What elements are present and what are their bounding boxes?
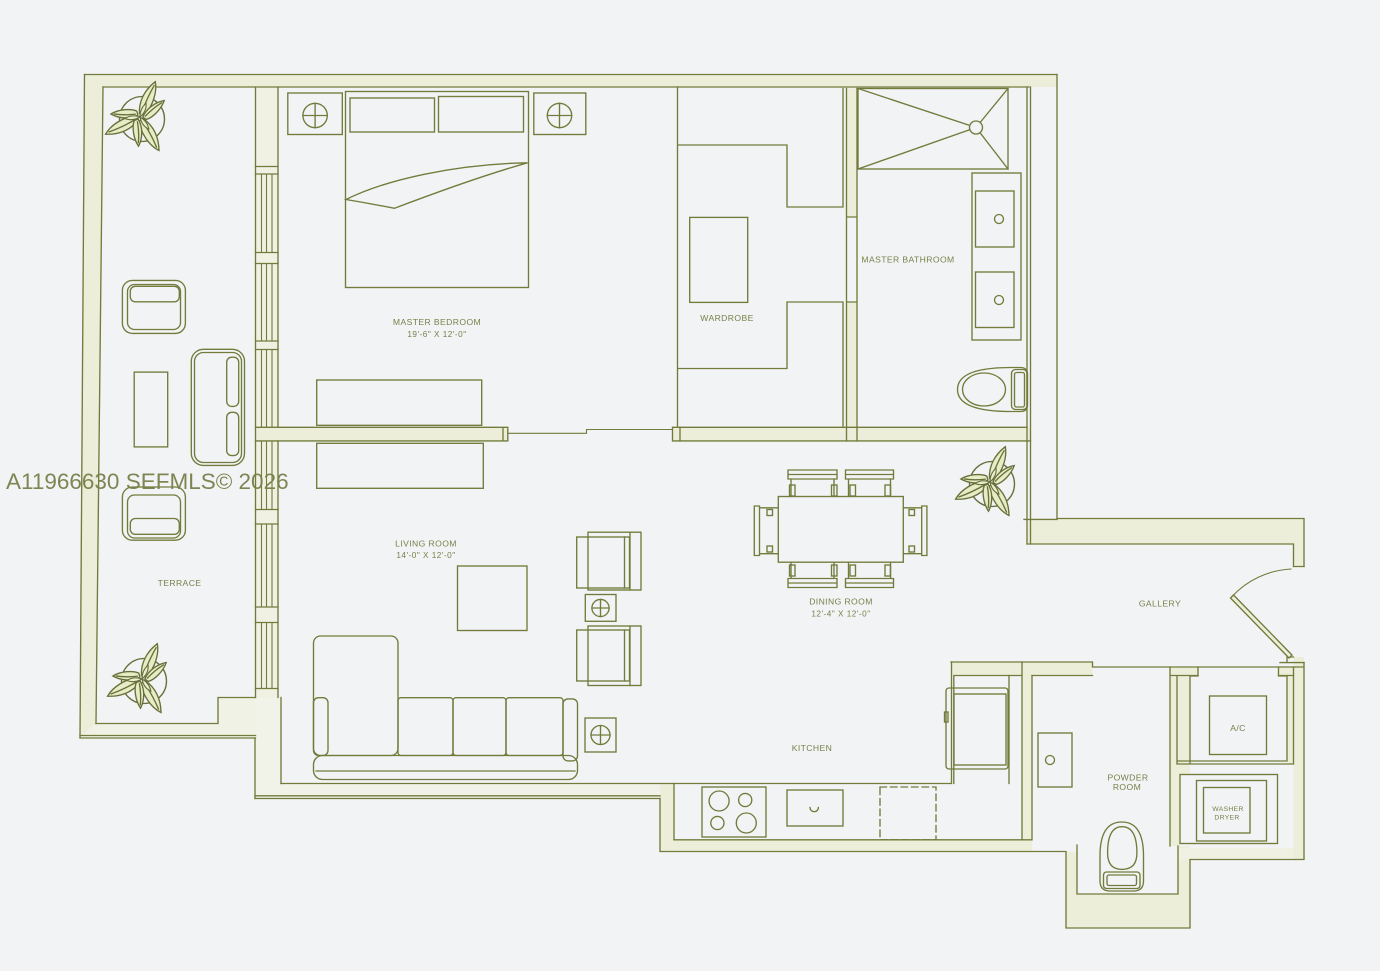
svg-text:ROOM: ROOM xyxy=(1113,782,1141,792)
svg-text:KITCHEN: KITCHEN xyxy=(792,743,833,753)
svg-text:MASTER BATHROOM: MASTER BATHROOM xyxy=(861,255,954,265)
svg-text:12'-4" X 12'-0": 12'-4" X 12'-0" xyxy=(811,610,870,619)
svg-text:A/C: A/C xyxy=(1230,723,1246,733)
svg-text:DINING ROOM: DINING ROOM xyxy=(809,597,873,607)
svg-text:WASHER: WASHER xyxy=(1212,806,1243,813)
svg-text:19'-6" X 12'-0": 19'-6" X 12'-0" xyxy=(407,330,466,339)
svg-text:MASTER BEDROOM: MASTER BEDROOM xyxy=(393,317,481,327)
svg-text:WARDROBE: WARDROBE xyxy=(700,313,754,323)
svg-text:POWDER: POWDER xyxy=(1107,773,1148,783)
svg-text:A11966630 SEFMLS© 2026: A11966630 SEFMLS© 2026 xyxy=(6,469,289,494)
svg-text:GALLERY: GALLERY xyxy=(1139,599,1181,609)
svg-text:LIVING ROOM: LIVING ROOM xyxy=(395,539,457,549)
svg-text:TERRACE: TERRACE xyxy=(158,578,202,588)
svg-text:DRYER: DRYER xyxy=(1214,815,1239,822)
svg-text:14'-0" X 12'-0": 14'-0" X 12'-0" xyxy=(396,551,455,560)
